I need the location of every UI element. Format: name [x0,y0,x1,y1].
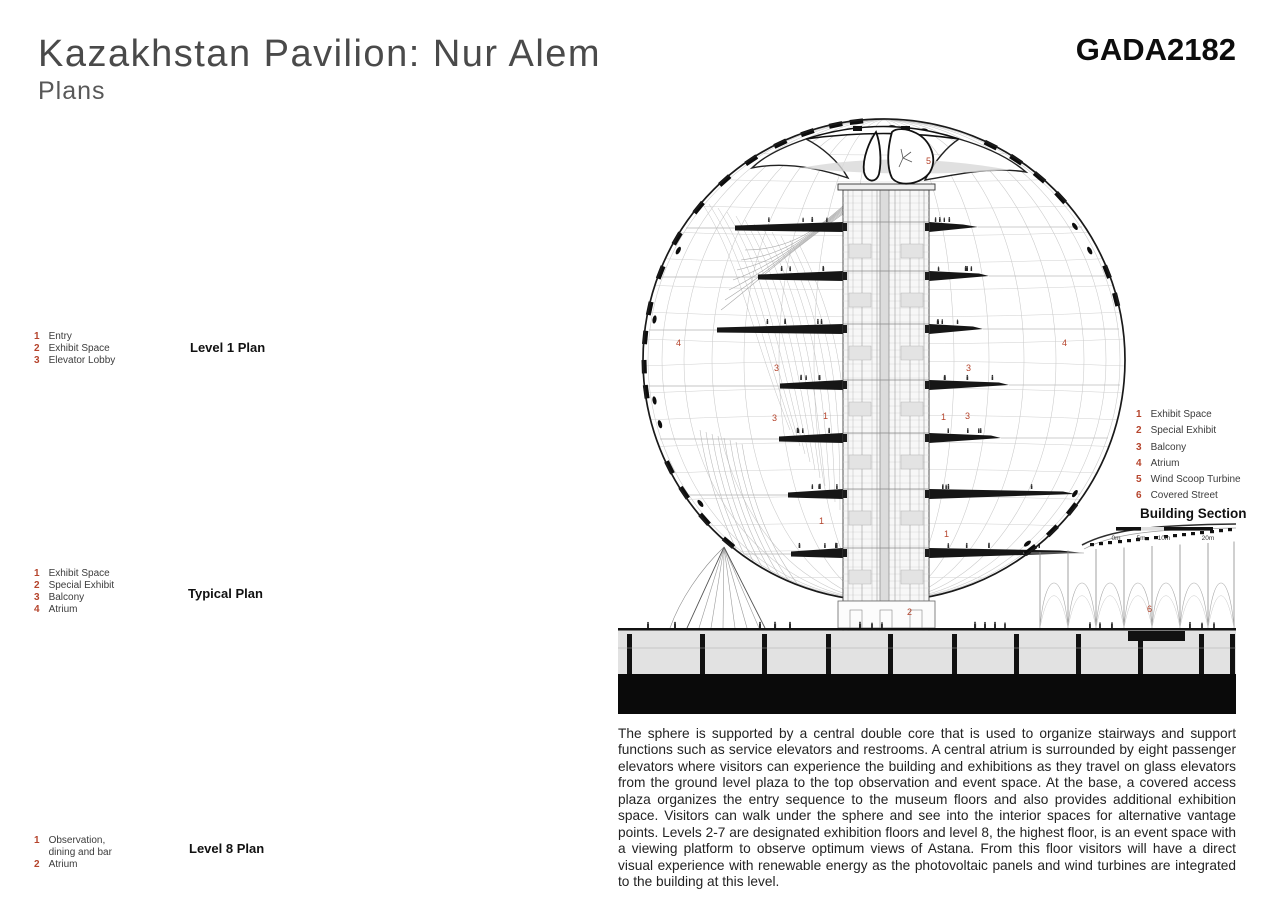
svg-text:3: 3 [772,413,777,423]
svg-text:2: 2 [907,607,912,617]
svg-text:1: 1 [944,529,949,539]
svg-text:3: 3 [965,411,970,421]
svg-text:3: 3 [774,363,779,373]
svg-text:4: 4 [676,338,681,348]
svg-text:6: 6 [1147,604,1152,614]
svg-text:4: 4 [1062,338,1067,348]
svg-text:0m: 0m [1111,535,1120,542]
svg-text:20m: 20m [1202,535,1215,542]
svg-text:1: 1 [823,411,828,421]
svg-text:10m: 10m [1158,535,1171,542]
svg-text:5: 5 [926,156,931,166]
svg-text:5m: 5m [1136,535,1145,542]
svg-text:1: 1 [819,516,824,526]
svg-text:3: 3 [966,363,971,373]
svg-text:1: 1 [941,412,946,422]
